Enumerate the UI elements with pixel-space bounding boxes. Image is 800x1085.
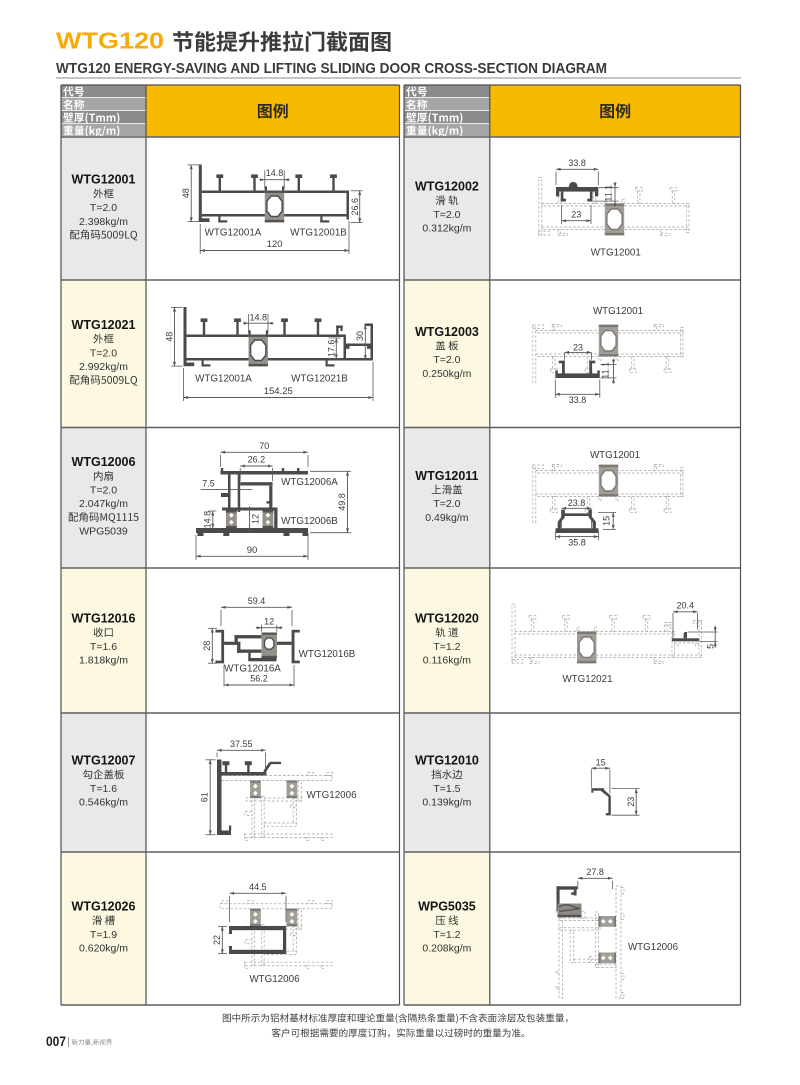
svg-text:48: 48 <box>181 188 191 198</box>
svg-text:WTG12006: WTG12006 <box>628 942 679 953</box>
svg-text:27.8: 27.8 <box>586 867 604 877</box>
svg-text:WTG12016A: WTG12016A <box>224 664 281 675</box>
svg-text:WTG12021: WTG12021 <box>72 318 136 332</box>
svg-text:WTG12016B: WTG12016B <box>299 649 356 660</box>
svg-text:22: 22 <box>212 935 222 945</box>
svg-text:WTG12001: WTG12001 <box>590 450 640 461</box>
svg-text:90: 90 <box>247 545 258 556</box>
svg-text:WTG12001: WTG12001 <box>593 306 643 317</box>
svg-text:T=2.0: T=2.0 <box>90 485 117 497</box>
svg-text:11.1: 11.1 <box>604 185 614 202</box>
svg-text:2.398kg/m: 2.398kg/m <box>79 216 128 228</box>
svg-text:120: 120 <box>267 239 283 250</box>
svg-text:WTG12006: WTG12006 <box>306 790 357 801</box>
svg-text:0.139kg/m: 0.139kg/m <box>422 797 471 809</box>
svg-text:26.6: 26.6 <box>350 198 360 216</box>
svg-text:WTG12006: WTG12006 <box>249 974 300 985</box>
svg-text:23: 23 <box>573 342 583 352</box>
svg-text:17.6: 17.6 <box>326 340 336 358</box>
svg-text:T=2.0: T=2.0 <box>433 209 460 221</box>
svg-text:44.5: 44.5 <box>249 882 267 892</box>
svg-text:T=1.6: T=1.6 <box>90 641 117 653</box>
svg-text:2.992kg/m: 2.992kg/m <box>79 361 128 373</box>
svg-text:12: 12 <box>264 617 274 627</box>
svg-text:0.116kg/m: 0.116kg/m <box>423 655 472 667</box>
svg-text:49.8: 49.8 <box>337 493 347 511</box>
svg-text:WTG12001B: WTG12001B <box>290 228 347 239</box>
svg-text:WTG12001: WTG12001 <box>72 173 136 187</box>
svg-text:2.047kg/m: 2.047kg/m <box>79 498 128 510</box>
svg-text:WTG120: WTG120 <box>56 28 164 54</box>
svg-text:T=2.0: T=2.0 <box>90 202 117 214</box>
svg-text:WTG12020: WTG12020 <box>415 612 479 626</box>
svg-text:35.8: 35.8 <box>568 537 586 547</box>
svg-text:007: 007 <box>46 1034 66 1049</box>
svg-text:WTG120 ENERGY-SAVING AND LIFTI: WTG120 ENERGY-SAVING AND LIFTING SLIDING… <box>56 60 607 77</box>
svg-text:WTG12016: WTG12016 <box>72 612 136 626</box>
svg-text:0.546kg/m: 0.546kg/m <box>79 797 128 809</box>
svg-text:14.8: 14.8 <box>249 313 267 323</box>
svg-text:154.25: 154.25 <box>264 386 293 397</box>
svg-text:11.1: 11.1 <box>600 362 610 379</box>
svg-text:WTG12001: WTG12001 <box>591 248 641 259</box>
svg-text:37.55: 37.55 <box>230 739 253 749</box>
svg-text:7.5: 7.5 <box>202 479 215 489</box>
svg-text:WTG12001A: WTG12001A <box>195 374 252 385</box>
svg-text:33.8: 33.8 <box>568 158 586 168</box>
svg-text:28: 28 <box>202 641 212 651</box>
svg-text:0.49kg/m: 0.49kg/m <box>425 512 468 524</box>
svg-text:23.8: 23.8 <box>568 498 586 508</box>
svg-text:59.4: 59.4 <box>248 596 266 606</box>
svg-text:WTG12011: WTG12011 <box>415 469 478 483</box>
svg-text:0.250kg/m: 0.250kg/m <box>422 368 471 380</box>
svg-text:WPG5035: WPG5035 <box>418 900 476 914</box>
svg-text:WPG5039: WPG5039 <box>79 526 128 538</box>
svg-text:15: 15 <box>602 516 612 526</box>
svg-text:30: 30 <box>355 331 365 341</box>
svg-text:56.2: 56.2 <box>250 674 268 684</box>
svg-text:T=2.0: T=2.0 <box>433 354 460 366</box>
svg-text:14.8: 14.8 <box>203 511 213 529</box>
svg-text:WTG12002: WTG12002 <box>415 180 479 194</box>
svg-text:20.4: 20.4 <box>677 600 695 610</box>
svg-text:T=1.2: T=1.2 <box>433 929 460 941</box>
svg-text:61: 61 <box>200 792 210 802</box>
svg-text:1.818kg/m: 1.818kg/m <box>79 655 128 667</box>
svg-text:T=1.6: T=1.6 <box>90 783 117 795</box>
svg-text:T=2.0: T=2.0 <box>433 498 460 510</box>
svg-text:26.2: 26.2 <box>248 455 266 465</box>
svg-text:T=1.5: T=1.5 <box>433 783 460 795</box>
svg-text:WTG12006: WTG12006 <box>72 455 136 469</box>
svg-text:WTG12021: WTG12021 <box>562 674 612 685</box>
svg-text:70: 70 <box>259 441 269 451</box>
svg-text:WTG12003: WTG12003 <box>415 325 479 339</box>
svg-text:T=1.2: T=1.2 <box>433 641 460 653</box>
svg-text:15: 15 <box>596 758 606 768</box>
svg-text:WTG12010: WTG12010 <box>415 754 479 768</box>
svg-text:14.8: 14.8 <box>266 168 284 178</box>
svg-text:T=2.0: T=2.0 <box>90 347 117 359</box>
svg-text:0.312kg/m: 0.312kg/m <box>422 223 471 235</box>
svg-text:WTG12026: WTG12026 <box>72 900 136 914</box>
svg-text:WTG12001A: WTG12001A <box>205 228 262 239</box>
svg-text:48: 48 <box>164 332 174 342</box>
svg-text:WTG12007: WTG12007 <box>72 754 136 768</box>
svg-text:12: 12 <box>251 514 261 524</box>
svg-text:T=1.9: T=1.9 <box>90 929 117 941</box>
svg-text:23: 23 <box>626 797 636 807</box>
svg-text:WTG12006B: WTG12006B <box>281 516 338 527</box>
svg-text:WTG12021B: WTG12021B <box>291 374 348 385</box>
svg-text:5: 5 <box>706 644 716 649</box>
svg-text:WTG12006A: WTG12006A <box>281 477 338 488</box>
svg-text:23: 23 <box>571 209 581 219</box>
svg-text:0.620kg/m: 0.620kg/m <box>79 943 128 955</box>
svg-text:0.208kg/m: 0.208kg/m <box>422 943 471 955</box>
svg-text:33.8: 33.8 <box>569 395 587 405</box>
